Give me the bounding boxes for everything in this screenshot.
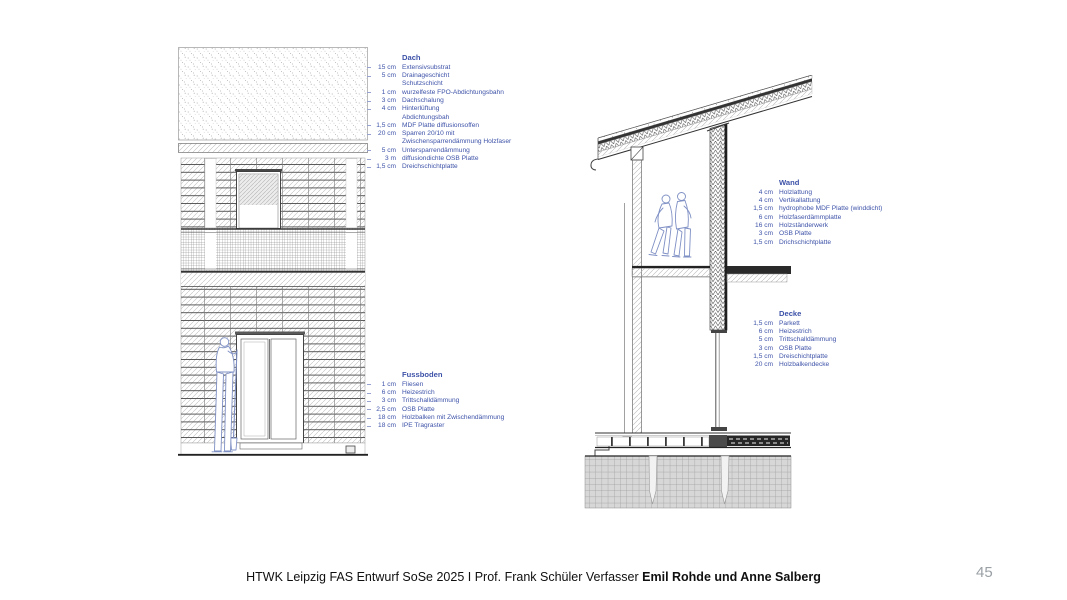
- layer-dimension: 2,5 cm: [352, 406, 402, 414]
- gutter: [591, 159, 599, 170]
- upper-window: [235, 169, 282, 229]
- layer-row: 3 cmTrittschalldämmung: [352, 397, 504, 405]
- layer-dimension: 3 cm: [729, 345, 779, 353]
- layer-label: Holzbalken mit Zwischendämmung: [402, 414, 504, 422]
- layer-dimension: 4 cm: [729, 197, 779, 205]
- layer-label: Holzbalkendecke: [779, 361, 829, 369]
- layer-row: 20 cmSparren 20/10 mit: [352, 130, 511, 138]
- layer-label: hydrophobe MDF Platte (winddicht): [779, 205, 882, 213]
- balcony-railing: [181, 228, 365, 272]
- layer-row: 3 mdiffusiondichte OSB Platte: [352, 155, 511, 163]
- base-plinth: [178, 443, 368, 455]
- leader-tick: [367, 101, 371, 102]
- layer-block-title: Fussboden: [352, 371, 504, 379]
- page-number: 45: [976, 564, 993, 581]
- layer-label: Trittschalldämmung: [779, 336, 836, 344]
- layer-dimension: 1,5 cm: [729, 205, 779, 213]
- layer-dimension: 1 cm: [352, 89, 402, 97]
- layer-label: Holzlattung: [779, 189, 812, 197]
- layer-row: Zwischensparrendämmung Holzfaser: [352, 138, 511, 146]
- layer-dimension: [352, 138, 402, 146]
- layer-dimension: 5 cm: [352, 72, 402, 80]
- layer-dimension: 3 m: [352, 155, 402, 163]
- layer-dimension: [352, 114, 402, 122]
- layer-dimension: 6 cm: [729, 328, 779, 336]
- layer-label: Hinterlüftung: [402, 105, 439, 113]
- layer-row: Schutzschicht: [352, 80, 511, 88]
- layer-row: 3 cmOSB Platte: [729, 230, 882, 238]
- layer-row: 6 cmHolzfaserdämmplatte: [729, 214, 882, 222]
- layer-row: 2,5 cmOSB Platte: [352, 406, 504, 414]
- leader-tick: [367, 92, 371, 93]
- layer-row: 5 cmTrittschalldämmung: [729, 336, 836, 344]
- layer-label: Parkett: [779, 320, 800, 328]
- layer-row: 5 cmUntersparrendämmung: [352, 147, 511, 155]
- layer-label: Vertikallattung: [779, 197, 820, 205]
- layer-row: 1,5 cmDrichschichtplatte: [729, 239, 882, 247]
- lower-door: [235, 332, 305, 444]
- eave-column: [631, 147, 643, 433]
- layer-label: Untersparrendämmung: [402, 147, 470, 155]
- layer-block-title: Wand: [729, 179, 882, 187]
- layer-block-title: Dach: [352, 54, 511, 62]
- layer-dimension: 18 cm: [352, 414, 402, 422]
- ground-foundation: [585, 456, 791, 508]
- ground-floor-slab: [595, 433, 791, 456]
- leader-tick: [367, 109, 371, 110]
- layer-dimension: 6 cm: [352, 389, 402, 397]
- leader-tick: [367, 393, 371, 394]
- layer-label: Heizestrich: [779, 328, 812, 336]
- layer-block-wand: Wand4 cmHolzlattung4 cmVertikallattung1,…: [729, 179, 882, 247]
- layer-label: Schutzschicht: [402, 80, 443, 88]
- leader-tick: [367, 409, 371, 410]
- layer-dimension: 5 cm: [352, 147, 402, 155]
- layer-label: OSB Platte: [779, 230, 812, 238]
- layer-row: 1,5 cmDreichschichtplatte: [352, 163, 511, 171]
- glass-door: [711, 330, 727, 431]
- layer-dimension: 1 cm: [352, 381, 402, 389]
- layer-row: 4 cmVertikallattung: [729, 197, 882, 205]
- layer-row: 4 cmHolzlattung: [729, 189, 882, 197]
- facade-body: [178, 158, 368, 455]
- footer: HTWK Leipzig FAS Entwurf SoSe 2025 I Pro…: [0, 570, 1067, 584]
- leader-tick: [367, 384, 371, 385]
- footer-text: HTWK Leipzig FAS Entwurf SoSe 2025 I Pro…: [246, 570, 642, 584]
- leader-tick: [367, 125, 371, 126]
- layer-dimension: 1,5 cm: [729, 320, 779, 328]
- layer-dimension: 15 cm: [352, 64, 402, 72]
- layer-dimension: 1,5 cm: [352, 122, 402, 130]
- layer-label: Drichschichtplatte: [779, 239, 831, 247]
- intermediate-floor: [632, 267, 710, 277]
- slide: Dach15 cmExtensivsubstrat5 cmDrainagesch…: [0, 0, 1067, 600]
- layer-dimension: 18 cm: [352, 422, 402, 430]
- leader-tick: [367, 401, 371, 402]
- layer-dimension: 4 cm: [729, 189, 779, 197]
- layer-dimension: 3 cm: [729, 230, 779, 238]
- layer-dimension: 1,5 cm: [729, 239, 779, 247]
- layer-label: Extensivsubstrat: [402, 64, 450, 72]
- layer-dimension: 3 cm: [352, 397, 402, 405]
- roof-section: [598, 75, 812, 160]
- leader-tick: [367, 67, 371, 68]
- layer-label: Drainageschicht: [402, 72, 449, 80]
- leader-tick: [367, 134, 371, 135]
- layer-dimension: [352, 80, 402, 88]
- layer-label: wurzelfeste FPO-Abdichtungsbahn: [402, 89, 504, 97]
- building-section-drawing: [583, 75, 818, 512]
- floor-band: [181, 272, 365, 287]
- leader-tick: [367, 76, 371, 77]
- layer-row: 1 cmFliesen: [352, 381, 504, 389]
- layer-row: 4 cmHinterlüftung: [352, 105, 511, 113]
- layer-row: 1,5 cmParkett: [729, 320, 836, 328]
- layer-row: 18 cmIPE Tragraster: [352, 422, 504, 430]
- people-figures: [649, 193, 691, 258]
- layer-row: 5 cmDrainageschicht: [352, 72, 511, 80]
- layer-row: Abdichtungsbah: [352, 114, 511, 122]
- layer-dimension: 20 cm: [729, 361, 779, 369]
- layer-row: 15 cmExtensivsubstrat: [352, 64, 511, 72]
- layer-label: Heizestrich: [402, 389, 435, 397]
- facade-elevation-drawing: [178, 47, 368, 459]
- layer-row: 6 cmHeizestrich: [729, 328, 836, 336]
- roof-edge-band: [179, 144, 368, 153]
- layer-label: Dreischichtplatte: [779, 353, 828, 361]
- layer-label: Fliesen: [402, 381, 423, 389]
- leader-tick: [367, 159, 371, 160]
- layer-label: Trittschalldämmung: [402, 397, 459, 405]
- layer-row: 1 cmwurzelfeste FPO-Abdichtungsbahn: [352, 89, 511, 97]
- layer-label: Sparren 20/10 mit: [402, 130, 454, 138]
- layer-label: Abdichtungsbah: [402, 114, 449, 122]
- layer-dimension: 1,5 cm: [729, 353, 779, 361]
- layer-label: diffusiondichte OSB Platte: [402, 155, 479, 163]
- layer-dimension: 20 cm: [352, 130, 402, 138]
- layer-label: IPE Tragraster: [402, 422, 445, 430]
- layer-row: 1,5 cmMDF Platte diffusionsoffen: [352, 122, 511, 130]
- layer-dimension: 16 cm: [729, 222, 779, 230]
- layer-row: 3 cmDachschalung: [352, 97, 511, 105]
- layer-block-dach: Dach15 cmExtensivsubstrat5 cmDrainagesch…: [352, 54, 511, 172]
- layer-row: 1,5 cmhydrophobe MDF Platte (winddicht): [729, 205, 882, 213]
- layer-dimension: 5 cm: [729, 336, 779, 344]
- layer-label: Holzfaserdämmplatte: [779, 214, 841, 222]
- layer-dimension: 3 cm: [352, 97, 402, 105]
- footer-authors: Emil Rohde und Anne Salberg: [642, 570, 821, 584]
- leader-tick: [367, 150, 371, 151]
- layer-row: 1,5 cmDreischichtplatte: [729, 353, 836, 361]
- layer-dimension: 1,5 cm: [352, 163, 402, 171]
- leader-tick: [367, 418, 371, 419]
- layer-label: OSB Platte: [779, 345, 812, 353]
- layer-label: MDF Platte diffusionsoffen: [402, 122, 479, 130]
- layer-block-fussboden: Fussboden1 cmFliesen6 cmHeizestrich3 cmT…: [352, 371, 504, 431]
- layer-row: 6 cmHeizestrich: [352, 389, 504, 397]
- layer-label: Holzständerwerk: [779, 222, 828, 230]
- exterior-slab: [727, 266, 791, 282]
- wall-section: [707, 123, 729, 330]
- layer-label: Zwischensparrendämmung Holzfaser: [402, 138, 511, 146]
- roof-substrate-area: [179, 48, 368, 141]
- layer-row: 3 cmOSB Platte: [729, 345, 836, 353]
- layer-dimension: 4 cm: [352, 105, 402, 113]
- leader-tick: [367, 167, 371, 168]
- layer-block-decke: Decke1,5 cmParkett6 cmHeizestrich5 cmTri…: [729, 310, 836, 370]
- layer-label: OSB Platte: [402, 406, 435, 414]
- layer-block-title: Decke: [729, 310, 836, 318]
- layer-row: 20 cmHolzbalkendecke: [729, 361, 836, 369]
- layer-label: Dreichschichtplatte: [402, 163, 458, 171]
- leader-tick: [367, 426, 371, 427]
- layer-label: Dachschalung: [402, 97, 444, 105]
- layer-row: 16 cmHolzständerwerk: [729, 222, 882, 230]
- layer-dimension: 6 cm: [729, 214, 779, 222]
- layer-row: 18 cmHolzbalken mit Zwischendämmung: [352, 414, 504, 422]
